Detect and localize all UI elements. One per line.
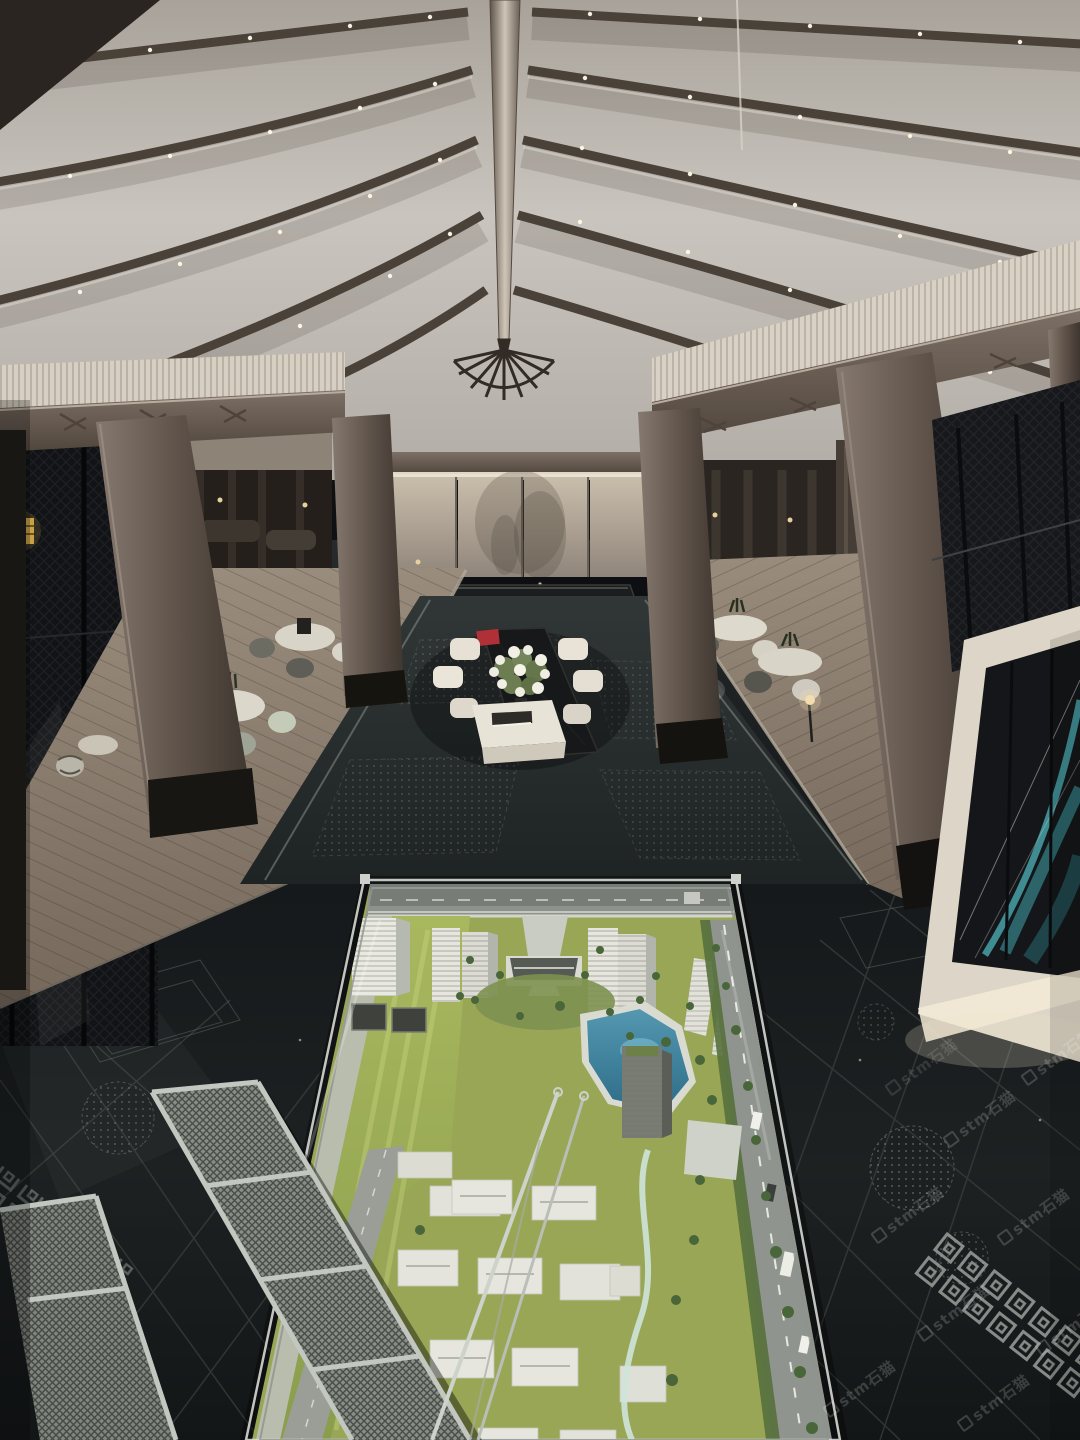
dining-table (707, 615, 767, 641)
scene-svg (0, 0, 1080, 1440)
plaza (684, 1120, 742, 1180)
centerpiece (297, 618, 311, 634)
dining-table (758, 648, 822, 676)
central-dark-tower (622, 1046, 672, 1138)
backlit-panels (392, 470, 657, 579)
red-box (476, 629, 499, 646)
photo-canvas: stm石猫 stm石猫 stm石猫 stm石猫 stm石猫 stm石猫 stm石… (0, 0, 1080, 1440)
coffee-table (472, 700, 566, 764)
corner-table (78, 735, 118, 755)
model-dark-pad (352, 1004, 386, 1030)
